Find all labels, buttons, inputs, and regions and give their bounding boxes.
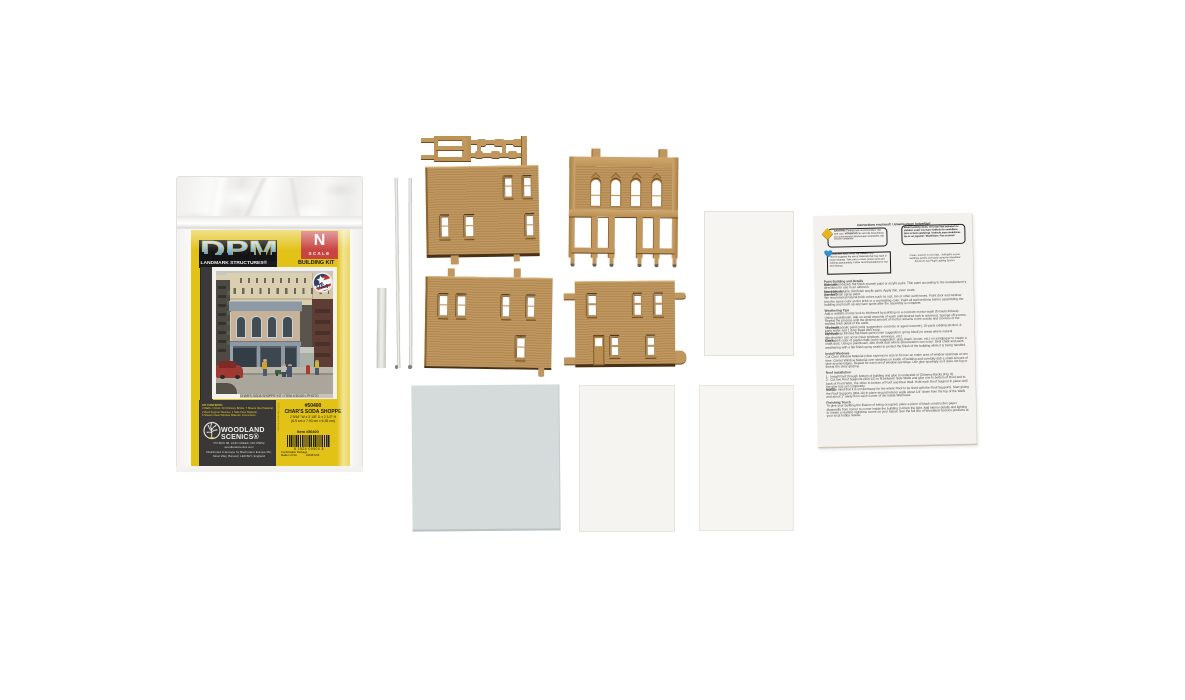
svg-text:USA: USA [316, 284, 328, 290]
